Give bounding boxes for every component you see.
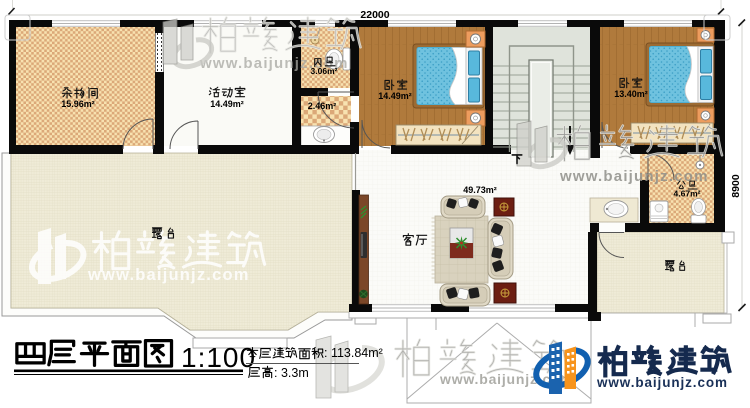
svg-text:3.06m²: 3.06m² xyxy=(311,66,338,76)
svg-text:www.baijunjz.com: www.baijunjz.com xyxy=(559,168,709,185)
svg-text:: 3.3m: : 3.3m xyxy=(274,366,309,380)
svg-text:15.96m²: 15.96m² xyxy=(61,99,95,109)
svg-text:: 113.84m²: : 113.84m² xyxy=(324,346,383,360)
svg-text:4.67m²: 4.67m² xyxy=(674,189,701,199)
svg-text:14.49m²: 14.49m² xyxy=(378,91,412,101)
svg-text:2.46m²: 2.46m² xyxy=(308,101,337,111)
svg-text:22000: 22000 xyxy=(360,9,389,21)
svg-text:www.baijunjz.com: www.baijunjz.com xyxy=(87,266,250,284)
svg-text:14.49m²: 14.49m² xyxy=(210,99,244,109)
svg-text:13.40m²: 13.40m² xyxy=(614,89,648,99)
svg-text:8900: 8900 xyxy=(730,174,742,198)
svg-text:49.73m²: 49.73m² xyxy=(463,185,497,195)
svg-text:www.baijunjz.com: www.baijunjz.com xyxy=(596,375,728,390)
svg-text:1:100: 1:100 xyxy=(181,342,256,373)
